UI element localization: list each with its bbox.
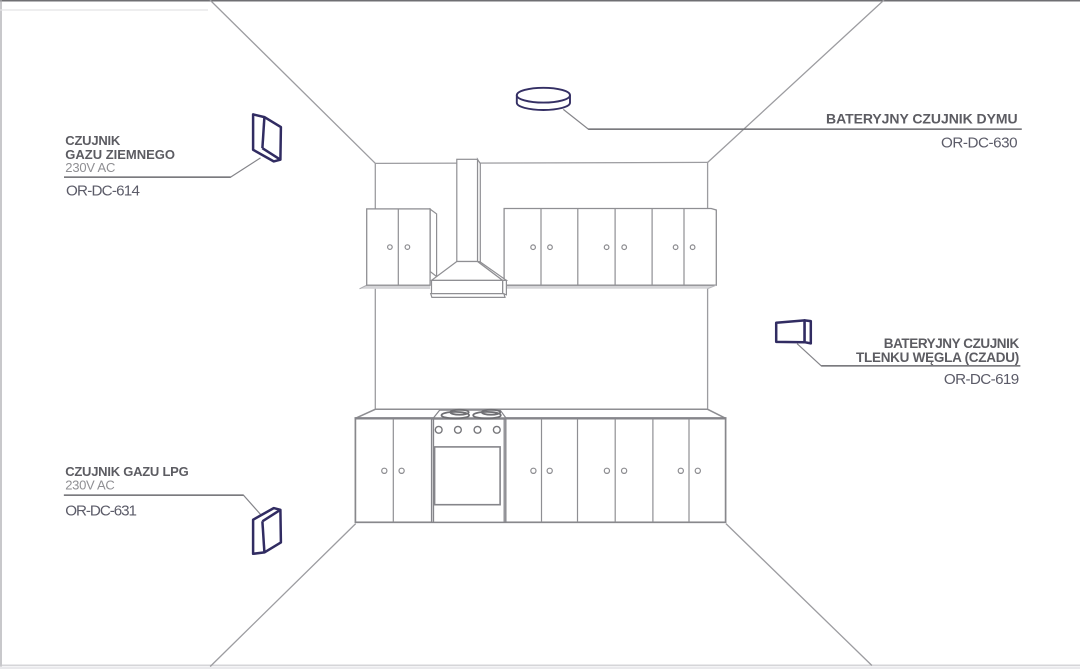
- svg-text:TLENKU WĘGLA (CZADU): TLENKU WĘGLA (CZADU): [856, 350, 1019, 365]
- svg-text:OR-DC-631: OR-DC-631: [65, 503, 137, 520]
- svg-text:OR-DC-630: OR-DC-630: [941, 135, 1018, 152]
- svg-text:OR-DC-619: OR-DC-619: [944, 371, 1019, 388]
- svg-text:BATERYJNY CZUJNIK: BATERYJNY CZUJNIK: [884, 336, 1020, 351]
- svg-text:230V AC: 230V AC: [65, 477, 115, 492]
- svg-text:BATERYJNY CZUJNIK DYMU: BATERYJNY CZUJNIK DYMU: [826, 111, 1018, 127]
- svg-text:CZUJNIK: CZUJNIK: [65, 133, 121, 148]
- svg-text:OR-DC-614: OR-DC-614: [66, 182, 140, 199]
- svg-text:230V AC: 230V AC: [65, 160, 115, 175]
